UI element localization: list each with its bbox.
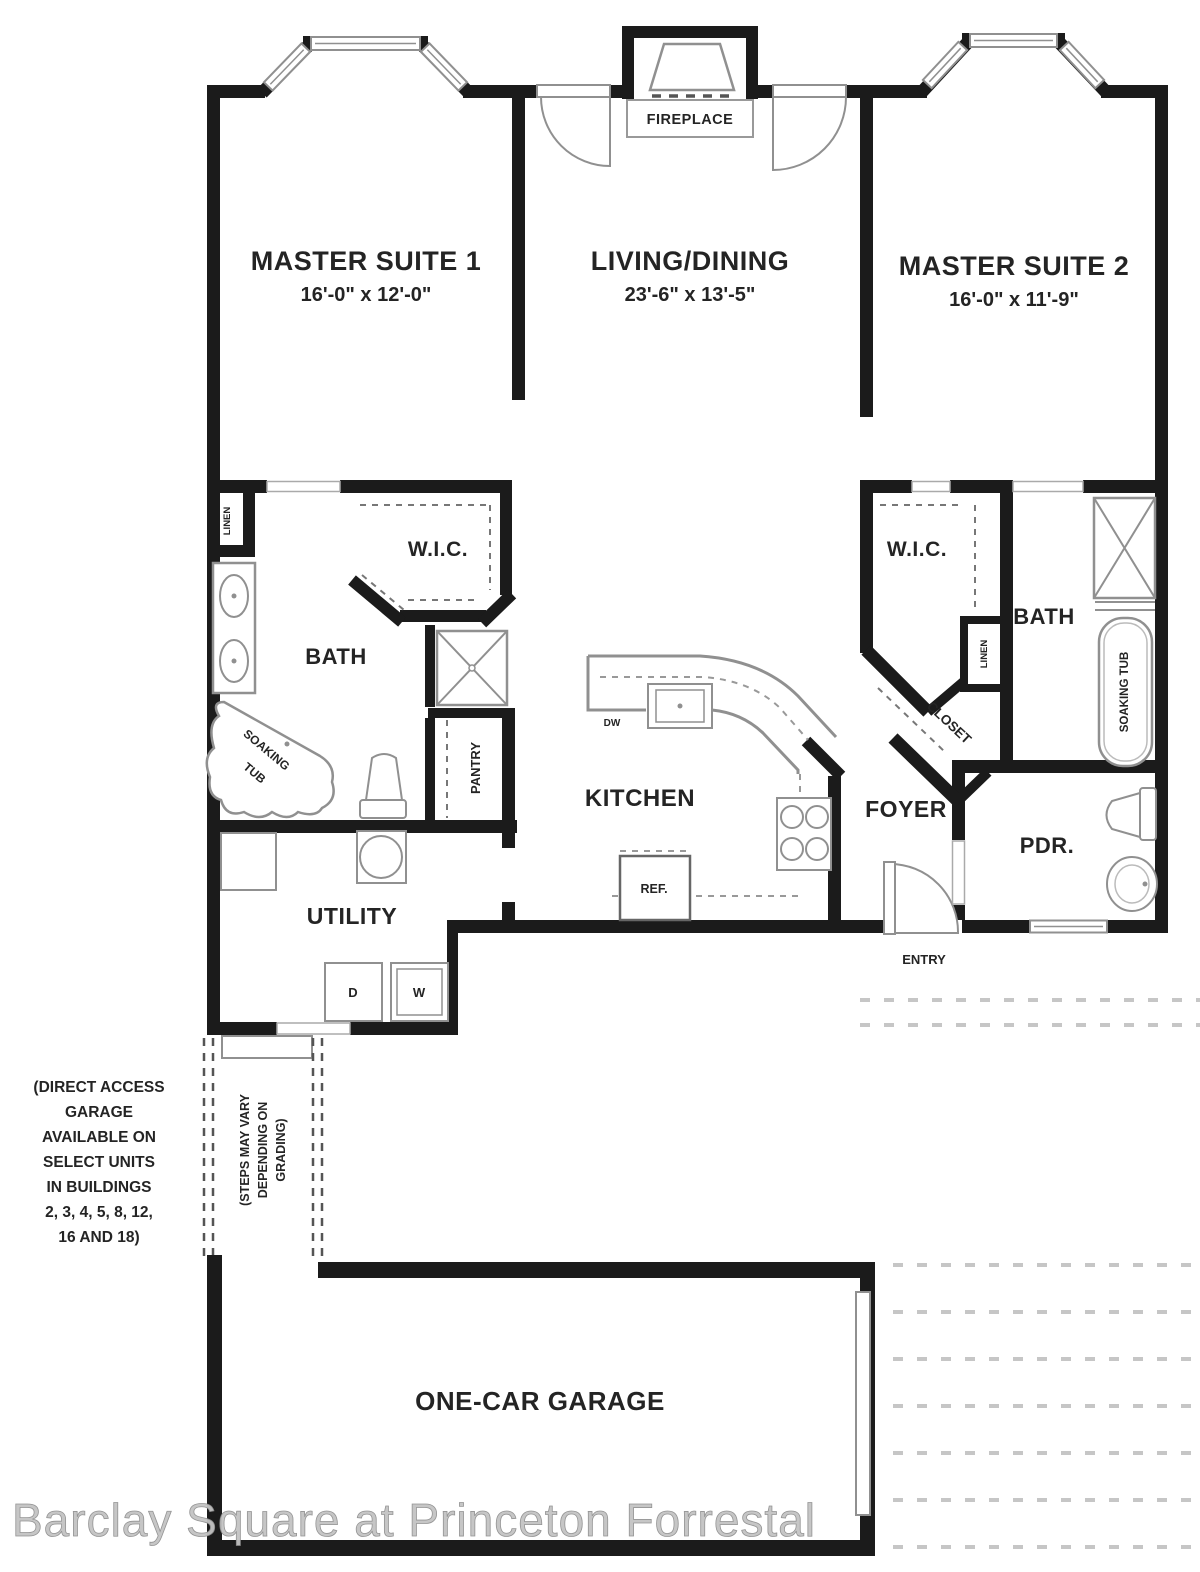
utility-cabinet [221, 833, 276, 890]
shower-right [1094, 498, 1155, 610]
pdr-label: PDR. [1020, 833, 1075, 858]
entry-label: ENTRY [902, 952, 946, 967]
linen-left-label: LINEN [222, 507, 233, 536]
steps-line-3: GRADING) [274, 1118, 288, 1181]
vanity-double-sinks [213, 563, 255, 693]
steps-note: (STEPS MAY VARY DEPENDING ON GRADING) [238, 1093, 288, 1205]
shower-left [437, 631, 507, 705]
bath-right-label: BATH [1013, 604, 1074, 629]
laundry-tub [357, 831, 406, 883]
note-line-7: 16 AND 18) [58, 1229, 139, 1246]
note-line-6: 2, 3, 4, 5, 8, 12, [45, 1204, 153, 1221]
note-line-2: GARAGE [65, 1104, 133, 1121]
toilet-left [360, 754, 406, 818]
powder-sink [1107, 857, 1157, 911]
entry-door [884, 862, 958, 934]
master-suite-1-label: MASTER SUITE 1 [251, 246, 482, 276]
wic-right-label: W.I.C. [887, 538, 947, 561]
dryer: D [325, 963, 382, 1021]
washer: W [391, 963, 448, 1021]
direct-access-note: (DIRECT ACCESS GARAGE AVAILABLE ON SELEC… [33, 1079, 164, 1246]
patio-door-left [537, 85, 610, 166]
bay-window-left [264, 37, 467, 91]
kitchen-label: KITCHEN [585, 785, 695, 812]
utility-label: UTILITY [307, 903, 397, 929]
pdr-window [1030, 921, 1107, 933]
linen-right-label: LINEN [979, 640, 990, 669]
cased-opening-ms2-wic [912, 482, 950, 492]
note-line-1: (DIRECT ACCESS [33, 1079, 164, 1096]
foyer-label: FOYER [865, 796, 947, 822]
washer-label: W [413, 985, 426, 1000]
floor-plan-page: FIREPLACE SOAKING TUB D [0, 0, 1200, 1572]
kitchen-sink [648, 684, 712, 728]
note-line-5: IN BUILDINGS [46, 1179, 151, 1196]
garage-label: ONE-CAR GARAGE [415, 1386, 665, 1416]
fireplace: FIREPLACE [627, 32, 753, 137]
master-suite-2-label: MASTER SUITE 2 [899, 251, 1130, 281]
watermark: Barclay Square at Princeton Forrestal [12, 1494, 816, 1546]
note-line-3: AVAILABLE ON [42, 1129, 156, 1146]
refrigerator: REF. [620, 856, 690, 920]
linen-closet-right: LINEN [964, 620, 1004, 688]
bath-left-label: BATH [305, 644, 366, 669]
cased-opening-ms2-bath [1013, 482, 1083, 492]
dishwasher-label: DW [604, 718, 621, 729]
fireplace-label: FIREPLACE [647, 112, 734, 128]
soaking-tub-right-label: SOAKING TUB [1119, 652, 1131, 733]
steps-line-2: DEPENDING ON [256, 1102, 270, 1199]
steps-line-1: (STEPS MAY VARY [238, 1093, 252, 1205]
entry-walkway-dashes [860, 1000, 1200, 1025]
linen-closet-left: LINEN [222, 507, 233, 536]
bay-window-right [923, 34, 1104, 88]
note-line-4: SELECT UNITS [43, 1154, 155, 1171]
living-dining-label: LIVING/DINING [591, 246, 790, 276]
cased-opening-ms1 [267, 482, 340, 492]
wic-left-label: W.I.C. [408, 538, 468, 561]
garage-door [856, 1292, 870, 1515]
powder-room-door [953, 841, 965, 904]
dryer-label: D [348, 985, 357, 1000]
master-suite-1-dims: 16'-0" x 12'-0" [301, 284, 432, 306]
refrigerator-label: REF. [640, 882, 667, 896]
utility-door-opening [277, 1023, 350, 1034]
living-dining-dims: 23'-6" x 13'-5" [625, 284, 756, 306]
master-suite-2-dims: 16'-0" x 11'-9" [949, 289, 1079, 311]
patio-door-right [773, 85, 846, 170]
soaking-tub-left: SOAKING TUB [207, 702, 334, 817]
driveway-dashes [893, 1265, 1200, 1547]
range-burners [777, 798, 831, 870]
pantry-label: PANTRY [468, 742, 483, 794]
soaking-tub-right: SOAKING TUB [1099, 618, 1152, 766]
powder-toilet [1107, 788, 1157, 840]
floor-plan-drawing: FIREPLACE SOAKING TUB D [0, 0, 1200, 1572]
